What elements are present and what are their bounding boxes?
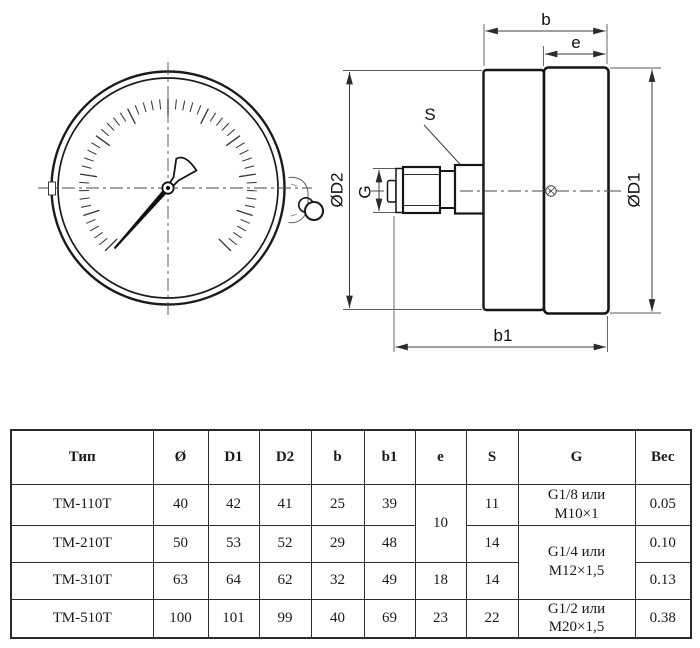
column-header-g: G — [518, 430, 635, 484]
table-cell: ТМ-510Т — [11, 599, 153, 638]
table-cell: 0.13 — [635, 562, 691, 599]
label-g: G — [356, 185, 375, 198]
pointer-hub-pin — [166, 186, 170, 190]
table-cell: 49 — [364, 562, 415, 599]
gauge-front-view — [38, 62, 323, 318]
table-cell: 25 — [311, 484, 364, 525]
seal-clip — [289, 177, 324, 222]
thread-spec-line: G1/4 или — [521, 543, 633, 562]
table-cell: 53 — [208, 525, 259, 562]
table-cell: 29 — [311, 525, 364, 562]
table-cell: 41 — [259, 484, 311, 525]
column-header-type: Тип — [11, 430, 153, 484]
thread-spec-line: М10×1 — [521, 505, 633, 524]
table-cell: 40 — [153, 484, 208, 525]
label-d2: ØD2 — [328, 173, 347, 208]
table-cell: ТМ-210Т — [11, 525, 153, 562]
table-cell: G1/2 или М20×1,5 — [518, 599, 635, 638]
table-cell: 23 — [415, 599, 466, 638]
column-header-s: S — [466, 430, 518, 484]
table-cell: 99 — [259, 599, 311, 638]
column-header-d2: D2 — [259, 430, 311, 484]
table-cell: 63 — [153, 562, 208, 599]
column-header-o: Ø — [153, 430, 208, 484]
label-b: b — [541, 10, 550, 29]
table-row: ТМ-510Т 100 101 99 40 69 23 22 G1/2 или … — [11, 599, 691, 638]
label-s: S — [424, 105, 435, 124]
wrench-boss — [455, 165, 484, 214]
table-cell: 101 — [208, 599, 259, 638]
column-header-weight: Вес — [635, 430, 691, 484]
rim-tab — [49, 182, 56, 195]
seal-ring-large — [305, 202, 323, 220]
fitting-neck — [440, 171, 455, 208]
table-cell: 42 — [208, 484, 259, 525]
table-cell: 18 — [415, 562, 466, 599]
table-cell: 48 — [364, 525, 415, 562]
table-cell: 40 — [311, 599, 364, 638]
thread-spec-line: М20×1,5 — [521, 618, 633, 637]
label-b1: b1 — [494, 326, 513, 345]
table-cell: 52 — [259, 525, 311, 562]
hex-nut — [403, 167, 440, 213]
column-header-b1: b1 — [364, 430, 415, 484]
thread-spec-line: М12×1,5 — [521, 562, 633, 581]
thread-fitting — [388, 165, 484, 214]
column-header-e: e — [415, 430, 466, 484]
table-cell: 0.10 — [635, 525, 691, 562]
table-row: ТМ-110Т 40 42 41 25 39 10 11 G1/8 или М1… — [11, 484, 691, 525]
label-d1: ØD1 — [625, 173, 644, 208]
table-cell: ТМ-310Т — [11, 562, 153, 599]
table-cell: 22 — [466, 599, 518, 638]
table-cell: G1/8 или М10×1 — [518, 484, 635, 525]
thread-spec-line: G1/2 или — [521, 600, 633, 619]
column-header-d1: D1 — [208, 430, 259, 484]
case-body — [484, 70, 545, 310]
table-cell: 10 — [415, 484, 466, 562]
table-cell: 14 — [466, 562, 518, 599]
thread-tip — [388, 181, 397, 203]
table-cell: 100 — [153, 599, 208, 638]
table-cell: G1/4 или М12×1,5 — [518, 525, 635, 599]
gauge-drawing-svg: b e S b1 ØD2 ØD1 G — [0, 0, 700, 424]
table-cell: 39 — [364, 484, 415, 525]
table-cell: 0.05 — [635, 484, 691, 525]
table-row: ТМ-210Т 50 53 52 29 48 14 G1/4 или М12×1… — [11, 525, 691, 562]
table-cell: 11 — [466, 484, 518, 525]
thread-spec-line: G1/8 или — [521, 486, 633, 505]
table-cell: 64 — [208, 562, 259, 599]
column-header-b: b — [311, 430, 364, 484]
dimensions-table: Тип Ø D1 D2 b b1 e S G Вес ТМ-110Т 40 42… — [10, 429, 692, 639]
table-cell: 50 — [153, 525, 208, 562]
table-cell: ТМ-110Т — [11, 484, 153, 525]
table-cell: 62 — [259, 562, 311, 599]
table-cell: 69 — [364, 599, 415, 638]
table-cell: 14 — [466, 525, 518, 562]
table-cell: 0.38 — [635, 599, 691, 638]
table-cell: 32 — [311, 562, 364, 599]
table-header-row: Тип Ø D1 D2 b b1 e S G Вес — [11, 430, 691, 484]
label-e: e — [571, 33, 580, 52]
gauge-side-view: b e S b1 ØD2 ØD1 G — [328, 10, 662, 352]
technical-drawing: b e S b1 ØD2 ØD1 G — [0, 0, 700, 424]
